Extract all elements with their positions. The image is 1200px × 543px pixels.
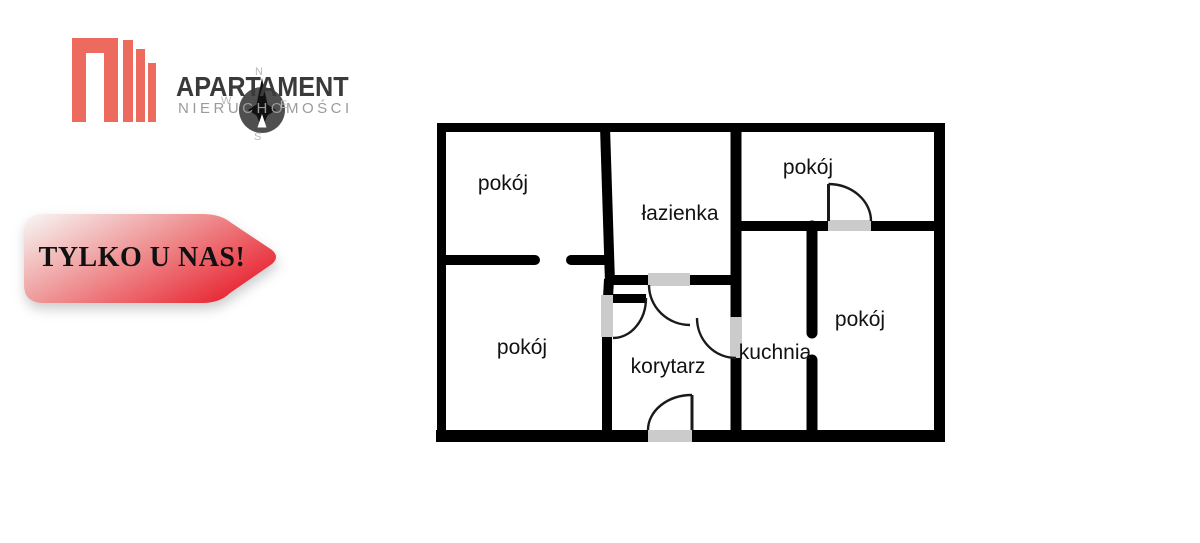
building-bar-icon	[123, 40, 133, 122]
door-sill	[648, 430, 692, 442]
room-label-top-left: pokój	[478, 172, 528, 195]
agency-logo: APARTAMENT NIERUCHOMOŚCI N W E S	[0, 0, 360, 170]
door-sill	[828, 220, 871, 231]
flyer-page: APARTAMENT NIERUCHOMOŚCI N W E S TYLKO U…	[0, 0, 1200, 543]
logo-subtitle: NIERUCHOMOŚCI	[178, 101, 353, 117]
room-label-kitchen: kuchnia	[739, 341, 812, 364]
door-swing-arc	[648, 395, 692, 430]
promo-banner: TYLKO U NAS!	[18, 206, 290, 310]
room-label-hallway: korytarz	[631, 355, 706, 378]
promo-banner-text: TYLKO U NAS!	[39, 242, 246, 273]
room-label-right: pokój	[835, 308, 885, 331]
room-label-top-right: pokój	[783, 156, 833, 179]
building-bar-icon	[148, 63, 156, 122]
building-gate-icon	[72, 38, 118, 122]
compass-south-label: S	[254, 132, 261, 143]
room-labels: pokój łazienka pokój pokój korytarz kuch…	[478, 156, 885, 378]
door-swing-arc	[613, 298, 646, 338]
door-sill	[648, 273, 690, 286]
door-sill	[601, 295, 613, 337]
room-label-bathroom: łazienka	[641, 202, 718, 225]
door-swing-arc	[829, 184, 872, 221]
room-label-bottom-left: pokój	[497, 336, 547, 359]
compass-west-label: W	[221, 96, 231, 107]
compass-east-label: E	[280, 100, 287, 111]
door-swing-arc	[649, 285, 690, 325]
building-bar-icon	[136, 49, 145, 122]
compass-north-label: N	[255, 67, 263, 78]
floor-plan: pokój łazienka pokój pokój korytarz kuch…	[420, 110, 960, 455]
